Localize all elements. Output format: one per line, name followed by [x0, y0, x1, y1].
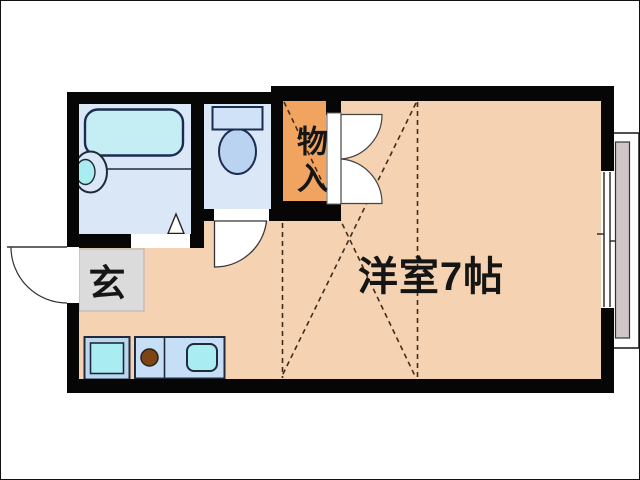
sink-icon: [187, 344, 217, 371]
balcony: [612, 133, 639, 348]
window-opening: [601, 171, 614, 308]
floorplan-drawing: [1, 1, 640, 480]
wall-left-upper: [67, 92, 79, 247]
balcony-floor: [616, 142, 630, 338]
entrance-door-opening: [67, 247, 79, 303]
washing-machine-icon: [91, 343, 124, 374]
kitchen-fixtures: [85, 337, 225, 380]
wall-right-upper: [601, 86, 614, 171]
gas-burner-icon: [141, 349, 158, 366]
toilet-tank-icon: [213, 107, 263, 130]
wall-right-lower: [601, 308, 614, 393]
room-label-main: 洋室7帖: [321, 244, 541, 302]
bathtub-icon: [85, 110, 183, 156]
wall-toilet-storage: [271, 86, 283, 221]
wall-top-right: [271, 86, 614, 101]
room-label-storage: 物入: [287, 125, 332, 199]
floorplan-image: 洋室7帖 玄 物入: [0, 0, 640, 480]
wall-bath-toilet: [191, 104, 204, 248]
wall-top-left: [67, 92, 277, 104]
wall-bottom: [67, 379, 614, 393]
room-label-entrance: 玄: [81, 253, 133, 307]
toilet-door-opening: [214, 209, 269, 221]
toilet-bowl-icon: [219, 129, 256, 174]
entrance-door-swing-icon: [11, 247, 67, 303]
bathroom-door-opening: [131, 234, 190, 248]
